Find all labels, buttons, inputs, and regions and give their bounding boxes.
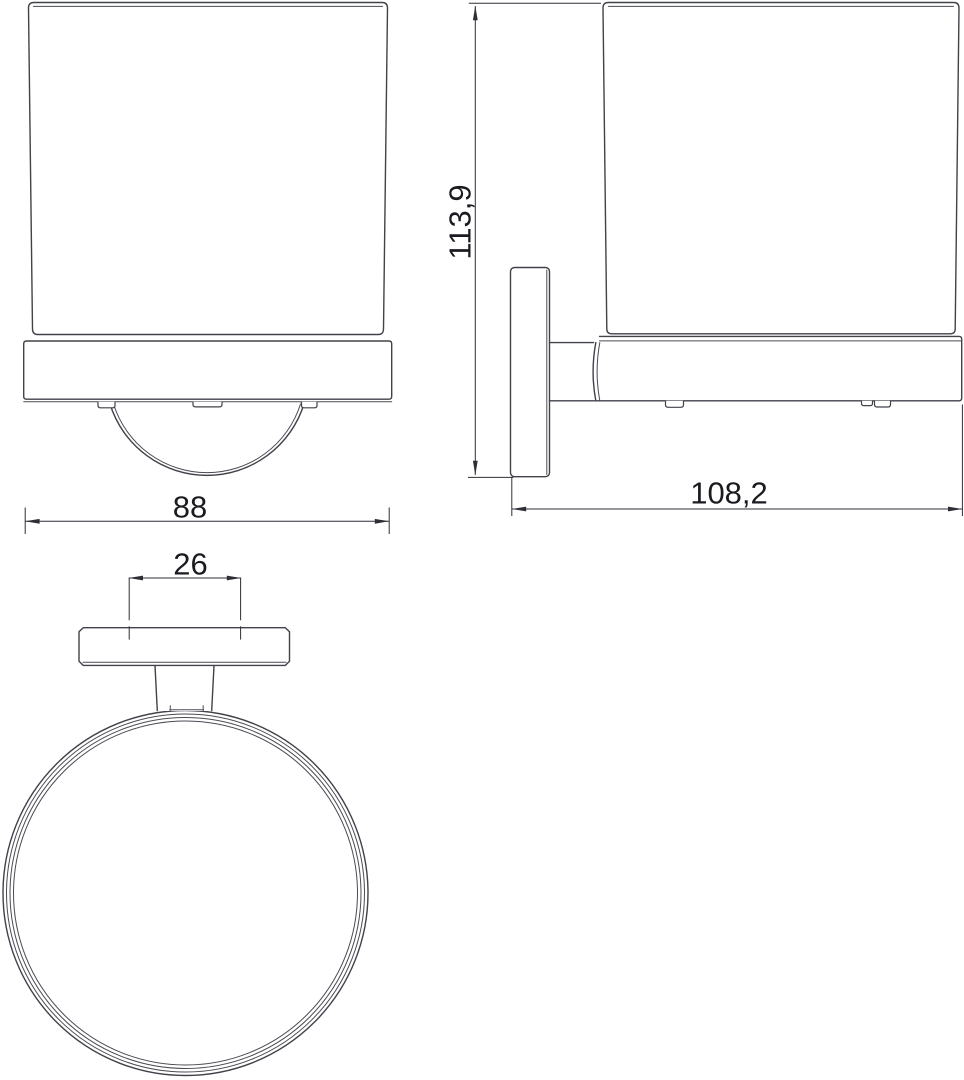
side-arm-collar-outer bbox=[593, 343, 596, 401]
height-dimension-label: 113,9 bbox=[443, 184, 478, 259]
side-holder-tab-a bbox=[666, 401, 684, 408]
side-height-dimension: 113,9 bbox=[443, 3, 602, 477]
side-arm-collar-inner bbox=[597, 343, 600, 401]
top-mount-dimension: 26 bbox=[129, 547, 242, 582]
side-holder-tab-c bbox=[875, 401, 891, 407]
side-depth-dimension: 108,2 bbox=[512, 405, 963, 517]
mount-arrow-left bbox=[129, 576, 143, 581]
side-view: 113,9 108,2 bbox=[443, 3, 963, 517]
front-tumbler-outline bbox=[29, 3, 388, 335]
front-holder-tab-center bbox=[193, 402, 222, 407]
front-ring-inner-arc bbox=[114, 404, 301, 473]
depth-arrow-left bbox=[512, 507, 526, 512]
front-ring-outer-arc bbox=[110, 404, 304, 475]
top-view: 26 bbox=[3, 547, 368, 1076]
top-ring-circle-2 bbox=[7, 714, 365, 1072]
technical-drawing-canvas: 88 113,9 bbox=[0, 0, 964, 1080]
side-wall-plate bbox=[511, 268, 550, 477]
height-arrow-down bbox=[473, 461, 478, 475]
top-ring-circle-inner bbox=[14, 721, 358, 1065]
width-arrow-left bbox=[25, 519, 39, 524]
top-ring-circle-3 bbox=[10, 718, 361, 1069]
side-holder-tab-b bbox=[862, 401, 873, 406]
drawing-svg: 88 113,9 bbox=[0, 0, 964, 1080]
width-arrow-right bbox=[375, 519, 389, 524]
depth-arrow-right bbox=[948, 507, 962, 512]
front-holder-tab-right bbox=[302, 402, 318, 408]
front-width-dimension: 88 bbox=[25, 490, 389, 535]
front-holder-tab-left bbox=[98, 402, 115, 408]
front-view: 88 bbox=[24, 3, 392, 535]
width-dimension-label: 88 bbox=[173, 490, 207, 525]
top-neck-fill bbox=[155, 666, 214, 711]
mount-dimension-label: 26 bbox=[173, 547, 207, 582]
height-arrow-up bbox=[473, 6, 478, 20]
top-wall-plate bbox=[79, 628, 290, 666]
side-holder-outline bbox=[550, 336, 962, 400]
depth-dimension-label: 108,2 bbox=[690, 476, 768, 511]
front-holder-plate bbox=[24, 341, 392, 399]
top-ring-circle-outer bbox=[3, 711, 368, 1076]
side-tumbler-outline bbox=[603, 3, 959, 334]
mount-arrow-right bbox=[227, 576, 241, 581]
